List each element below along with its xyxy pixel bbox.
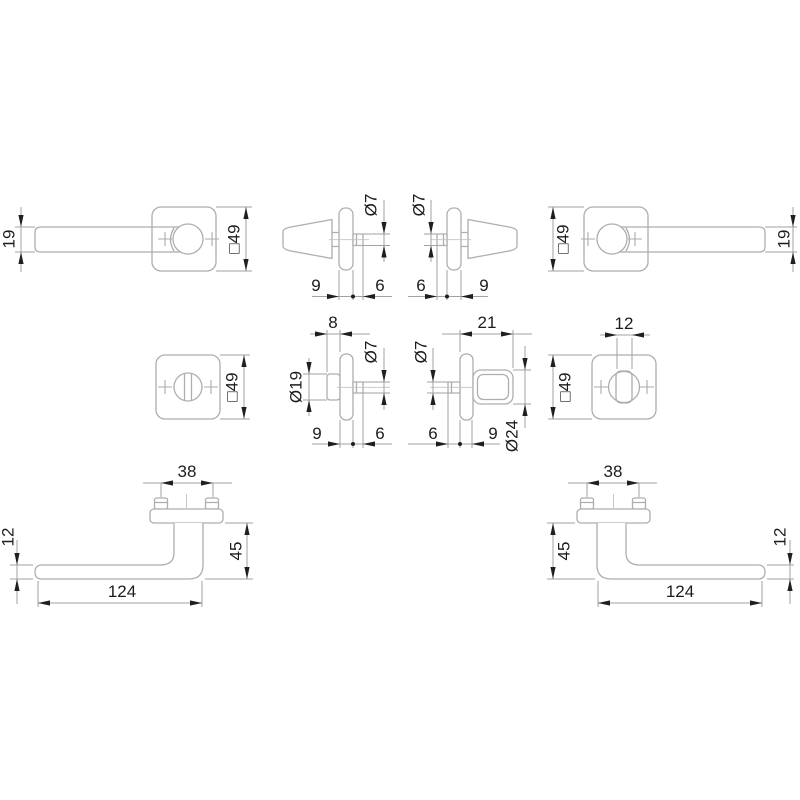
rosette-side	[447, 208, 461, 270]
view-right-handle-side: Ø7 6 9	[408, 194, 517, 300]
dim-screw-spacing: 38	[568, 462, 657, 497]
screw-left	[155, 498, 168, 509]
dim-label-lever-height: 12	[0, 528, 18, 547]
technical-drawing-page: 19 □49 Ø7 9 6	[0, 0, 800, 800]
dim-label-projection: 45	[227, 542, 246, 561]
dim-label-rose-size: □49	[556, 372, 575, 401]
dim-label-screw-spacing: 38	[178, 462, 197, 481]
dim-label-spindle-dia: Ø7	[362, 194, 381, 217]
screw-right	[633, 498, 646, 509]
dim-spindle-dia: Ø7	[362, 194, 391, 262]
screw-right	[206, 498, 219, 509]
dim-rose-size: □49	[548, 355, 592, 419]
dim-label-spindle-out: 6	[375, 276, 384, 295]
grip-profile	[283, 220, 332, 259]
dim-screw-spacing: 38	[143, 462, 232, 497]
dim-label-turn-dia: Ø24	[503, 420, 522, 452]
view-thumbturn-rosette-side: 21 Ø7 Ø24 6 9	[408, 313, 532, 452]
dim-label-turn-out: 21	[478, 313, 497, 332]
dim-rose-size: □49	[216, 207, 252, 271]
dim-label-spindle-out: 6	[428, 424, 437, 443]
view-release-rosette-side: 8 Ø19 Ø7 9 6	[287, 313, 393, 448]
handle-neck	[597, 224, 627, 254]
dim-label-turn-width: 12	[615, 314, 634, 333]
dim-label-release-dia: Ø19	[287, 371, 306, 403]
dim-label-screw-spacing: 38	[604, 462, 623, 481]
view-left-handle-side: Ø7 9 6	[283, 194, 392, 300]
view-release-rosette-face: □49	[156, 355, 250, 419]
view-right-handle-plan: □49 19	[548, 207, 797, 272]
dim-rose-size: □49	[220, 355, 250, 419]
dim-projection: 45	[205, 523, 253, 579]
mounting-flange	[577, 509, 650, 523]
dim-label-spindle-dia: Ø7	[412, 341, 431, 364]
dim-lever-width: 19	[765, 207, 797, 272]
dim-label-projection: 45	[555, 542, 574, 561]
dim-projection: 45	[547, 523, 595, 579]
dim-label-rose-depth: 9	[488, 424, 497, 443]
grip-profile	[468, 220, 517, 259]
dim-label-lever-height: 12	[771, 528, 790, 547]
lever-outline	[35, 523, 203, 579]
dim-lever-height: 12	[767, 528, 794, 604]
dim-length: 124	[38, 581, 202, 607]
lever-outline	[597, 523, 765, 579]
dim-label-rose-depth: 9	[479, 276, 488, 295]
view-left-handle-plan: 19 □49	[0, 207, 252, 272]
dim-label-spindle-dia: Ø7	[410, 194, 429, 217]
dim-label-rose-size: □49	[225, 224, 244, 253]
dim-label-length: 124	[666, 582, 694, 601]
dim-length: 124	[598, 581, 762, 607]
dim-label-spindle-out: 6	[416, 276, 425, 295]
dim-turn-out: 21	[442, 313, 532, 368]
dim-label-rose-size: □49	[223, 372, 242, 401]
dim-label-spindle-dia: Ø7	[362, 341, 381, 364]
door-handle-technical-drawing: 19 □49 Ø7 9 6	[0, 0, 800, 800]
dim-label-lever-width: 19	[775, 230, 794, 249]
view-right-lever-elevation: 38 45 12 124	[547, 462, 794, 607]
mounting-flange	[150, 509, 223, 523]
dim-spindle-dia: Ø7	[362, 341, 391, 410]
dim-spindle-dia: Ø7	[410, 194, 438, 262]
dim-label-spindle-out: 6	[375, 424, 384, 443]
handle-neck	[173, 224, 203, 254]
dim-rose-size: □49	[548, 207, 584, 271]
dim-label-rose-depth: 9	[311, 276, 320, 295]
screw-left	[581, 498, 594, 509]
dim-lever-height: 12	[0, 528, 33, 604]
dim-label-rose-depth: 9	[312, 424, 321, 443]
dim-lever-width: 19	[0, 207, 35, 272]
dim-release-dia: Ø19	[287, 358, 328, 416]
dim-label-lever-width: 19	[0, 230, 19, 249]
dim-spindle-dia: Ø7	[412, 341, 449, 410]
view-thumbturn-rosette-face: 12 □49	[548, 314, 656, 419]
release-cylinder	[174, 373, 202, 401]
dim-label-rose-size: □49	[554, 224, 573, 253]
rosette-side	[339, 208, 353, 270]
thumbturn-base	[609, 372, 640, 403]
dim-label-release-out: 8	[328, 313, 337, 332]
view-left-lever-elevation: 38 45 12 124	[0, 462, 253, 607]
dim-label-length: 124	[108, 582, 136, 601]
